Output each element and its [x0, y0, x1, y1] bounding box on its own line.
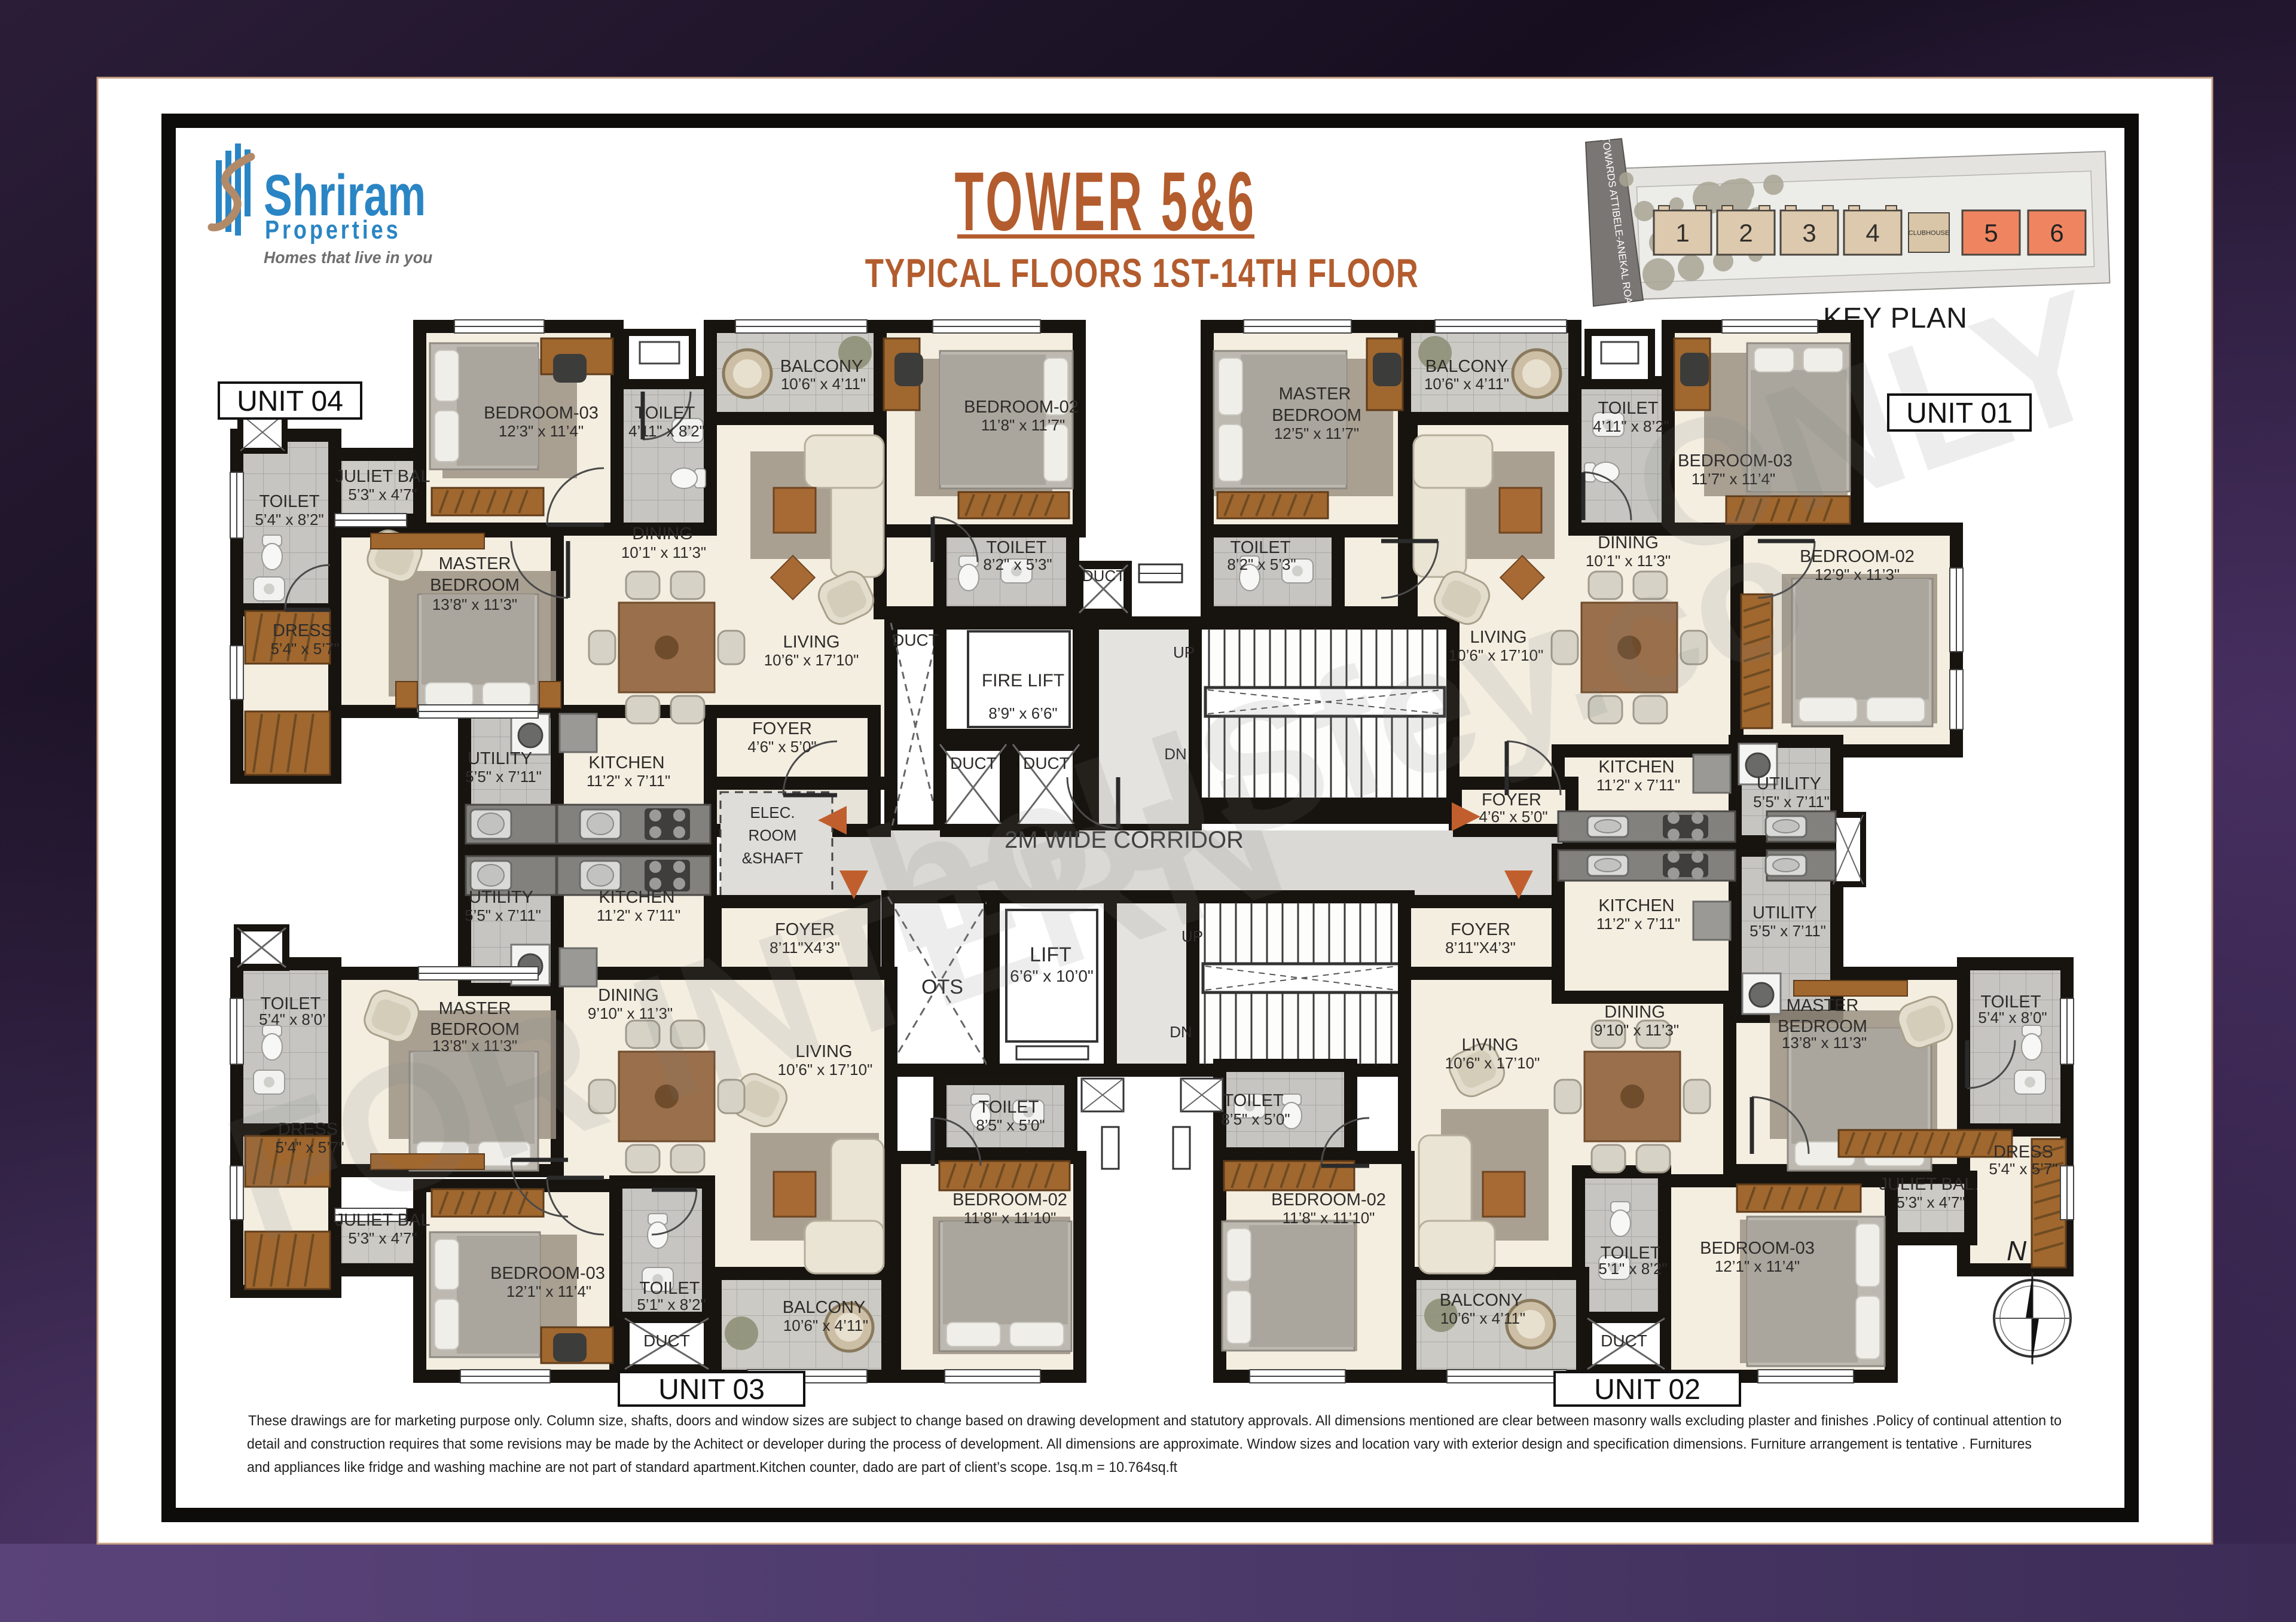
svg-text:DINING: DINING: [632, 524, 693, 543]
svg-text:UNIT 04: UNIT 04: [237, 386, 343, 417]
svg-text:BEDROOM-03: BEDROOM-03: [484, 404, 599, 423]
svg-text:BALCONY: BALCONY: [780, 357, 863, 376]
svg-text:JULIET BAL: JULIET BAL: [335, 467, 430, 486]
svg-text:UNIT 01: UNIT 01: [1906, 398, 2013, 429]
svg-text:5’1" x 8’2": 5’1" x 8’2": [1598, 1260, 1667, 1278]
svg-text:11’2" x 7’11": 11’2" x 7’11": [1596, 776, 1680, 794]
svg-text:10’6" x 17’10": 10’6" x 17’10": [764, 651, 859, 669]
svg-text:1: 1: [1675, 219, 1689, 247]
svg-text:10’6" x 17’10": 10’6" x 17’10": [1445, 1054, 1540, 1072]
svg-text:5’5" x 7’11": 5’5" x 7’11": [465, 906, 541, 924]
svg-text:DUCT: DUCT: [643, 1331, 690, 1350]
svg-text:TOILET: TOILET: [259, 492, 320, 511]
svg-text:JULIET BAL.: JULIET BAL.: [1879, 1175, 1979, 1194]
svg-text:5’3" x 4’7": 5’3" x 4’7": [1896, 1193, 1965, 1211]
svg-text:11’8" x 11’10": 11’8" x 11’10": [964, 1209, 1057, 1227]
svg-text:DRESS: DRESS: [273, 621, 332, 640]
svg-text:BALCONY: BALCONY: [1425, 357, 1509, 376]
svg-text:5’5" x 7’11": 5’5" x 7’11": [1750, 922, 1826, 940]
svg-text:KITCHEN: KITCHEN: [1598, 757, 1674, 777]
svg-text:BEDROOM-03: BEDROOM-03: [1700, 1239, 1815, 1258]
svg-text:BEDROOM: BEDROOM: [1272, 406, 1361, 425]
svg-text:5’4" x 8’0’: 5’4" x 8’0’: [259, 1010, 326, 1028]
svg-text:TOILET: TOILET: [987, 538, 1047, 557]
svg-text:N: N: [2007, 1235, 2027, 1266]
svg-text:6: 6: [2050, 219, 2063, 247]
svg-text:FOYER: FOYER: [1451, 920, 1510, 939]
svg-text:DUCT: DUCT: [1601, 1331, 1647, 1350]
svg-text:Properties: Properties: [265, 215, 401, 245]
svg-text:11’8" x 11’10": 11’8" x 11’10": [1283, 1209, 1375, 1227]
svg-text:5: 5: [1984, 219, 1998, 247]
svg-text:ROOM: ROOM: [749, 826, 797, 844]
svg-text:11’2" x 7’11": 11’2" x 7’11": [1596, 915, 1680, 933]
svg-text:12’1" x 11’4": 12’1" x 11’4": [1715, 1257, 1800, 1275]
svg-text:UTILITY: UTILITY: [1757, 774, 1821, 793]
svg-text:TYPICAL FLOORS 1ST-14TH FLOOR: TYPICAL FLOORS 1ST-14TH FLOOR: [865, 251, 1419, 296]
svg-text:13’8" x 11’3": 13’8" x 11’3": [1782, 1034, 1867, 1052]
svg-text:UNIT 03: UNIT 03: [658, 1374, 765, 1406]
svg-text:8’2" x 5’3": 8’2" x 5’3": [983, 555, 1052, 573]
svg-text:BALCONY: BALCONY: [783, 1298, 866, 1317]
svg-text:3: 3: [1802, 219, 1816, 247]
svg-text:5’4" x 5’7": 5’4" x 5’7": [270, 640, 339, 658]
svg-text:TOILET: TOILET: [635, 404, 695, 423]
svg-text:8’5" x 5’0": 8’5" x 5’0": [976, 1116, 1045, 1134]
svg-text:5’4" x 8’0": 5’4" x 8’0": [1978, 1009, 2047, 1027]
svg-text:These drawings are for marketi: These drawings are for marketing purpose…: [248, 1413, 2062, 1429]
svg-text:MASTER: MASTER: [1787, 996, 1859, 1015]
svg-text:10’6" x 4’11": 10’6" x 4’11": [783, 1316, 868, 1334]
svg-text:2: 2: [1739, 219, 1752, 247]
svg-text:BEDROOM-02: BEDROOM-02: [964, 398, 1079, 417]
svg-text:10’6" x 4’11": 10’6" x 4’11": [1424, 375, 1509, 393]
svg-text:ELEC.: ELEC.: [750, 804, 795, 821]
svg-text:KITCHEN: KITCHEN: [588, 753, 664, 772]
svg-text:TOILET: TOILET: [979, 1098, 1039, 1117]
svg-text:FOYER: FOYER: [752, 719, 812, 738]
svg-text:TOILET: TOILET: [1223, 1091, 1284, 1110]
svg-text:BEDROOM-02: BEDROOM-02: [1800, 547, 1915, 566]
svg-text:UTILITY: UTILITY: [469, 888, 533, 907]
svg-text:detail and construction requir: detail and construction requires that so…: [247, 1436, 2032, 1452]
svg-text:12’1" x 11’4": 12’1" x 11’4": [506, 1282, 591, 1300]
svg-text:12’9" x 11’3": 12’9" x 11’3": [1815, 566, 1900, 584]
svg-text:CLUBHOUSE: CLUBHOUSE: [1909, 230, 1949, 237]
svg-text:BEDROOM-03: BEDROOM-03: [490, 1264, 605, 1283]
svg-text:DN: DN: [1170, 1023, 1192, 1041]
svg-text:5’1" x 8’2": 5’1" x 8’2": [637, 1296, 706, 1314]
svg-text:5’4" x 5’7": 5’4" x 5’7": [1989, 1160, 2057, 1178]
svg-text:FIRE LIFT: FIRE LIFT: [982, 671, 1064, 691]
svg-text:4’11" x 8’2": 4’11" x 8’2": [628, 422, 705, 440]
svg-text:UNIT 02: UNIT 02: [1594, 1374, 1700, 1406]
svg-text:11’2" x 7’11": 11’2" x 7’11": [587, 772, 670, 790]
svg-text:11’8" x 11’7": 11’8" x 11’7": [981, 416, 1065, 434]
svg-text:&SHAFT: &SHAFT: [742, 849, 804, 867]
svg-text:13’8" x 11’3": 13’8" x 11’3": [432, 595, 517, 613]
svg-text:4’6" x 5’0": 4’6" x 5’0": [747, 738, 816, 756]
svg-text:DUCT: DUCT: [1082, 567, 1125, 585]
svg-text:LIVING: LIVING: [1461, 1035, 1518, 1055]
svg-text:BEDROOM-02: BEDROOM-02: [1271, 1190, 1386, 1209]
svg-text:12’5" x 11’7": 12’5" x 11’7": [1274, 424, 1359, 442]
svg-text:Homes that live in you: Homes that live in you: [264, 248, 433, 267]
svg-text:KITCHEN: KITCHEN: [599, 888, 674, 907]
svg-text:4’6" x 5’0": 4’6" x 5’0": [1479, 808, 1547, 826]
svg-text:BEDROOM-02: BEDROOM-02: [952, 1190, 1067, 1209]
svg-text:UP: UP: [1173, 643, 1195, 661]
svg-text:TOILET: TOILET: [1231, 538, 1291, 557]
svg-text:5’5" x 7’11": 5’5" x 7’11": [1753, 793, 1830, 811]
svg-text:5’4" x 8’2": 5’4" x 8’2": [255, 511, 323, 529]
svg-text:MASTER: MASTER: [439, 554, 511, 573]
svg-text:10’6" x 4’11": 10’6" x 4’11": [781, 375, 866, 393]
svg-text:5’3" x 4’7": 5’3" x 4’7": [348, 485, 417, 503]
svg-text:UTILITY: UTILITY: [468, 749, 532, 768]
svg-text:DUCT: DUCT: [892, 631, 939, 649]
svg-text:10’6" x 4’11": 10’6" x 4’11": [1440, 1309, 1525, 1327]
svg-text:KITCHEN: KITCHEN: [1598, 896, 1674, 915]
svg-text:FOYER: FOYER: [1482, 790, 1541, 810]
svg-text:BEDROOM: BEDROOM: [430, 576, 520, 595]
svg-text:and appliances like fridge and: and appliances like fridge and washing m…: [247, 1459, 1177, 1476]
svg-text:12’3" x 11’4": 12’3" x 11’4": [499, 422, 584, 440]
svg-text:DRESS: DRESS: [1993, 1143, 2053, 1162]
svg-text:8’2" x 5’3": 8’2" x 5’3": [1227, 555, 1296, 573]
svg-text:BALCONY: BALCONY: [1440, 1291, 1523, 1310]
svg-text:UTILITY: UTILITY: [1752, 903, 1817, 923]
svg-text:4: 4: [1865, 219, 1879, 247]
svg-text:8’5" x 5’0": 8’5" x 5’0": [1221, 1110, 1290, 1128]
svg-text:10’1" x 11’3": 10’1" x 11’3": [621, 543, 706, 561]
svg-text:MASTER: MASTER: [1279, 384, 1351, 404]
svg-text:LIVING: LIVING: [783, 633, 839, 652]
svg-text:5’5" x 7’11": 5’5" x 7’11": [465, 768, 542, 786]
svg-text:8’9" x 6’6": 8’9" x 6’6": [988, 704, 1057, 722]
svg-text:DINING: DINING: [1604, 1003, 1665, 1022]
svg-text:9’10" x 11’3": 9’10" x 11’3": [1594, 1021, 1679, 1039]
svg-text:8’11"X4’3": 8’11"X4’3": [1445, 939, 1516, 957]
svg-text:11’2" x 7’11": 11’2" x 7’11": [597, 906, 680, 924]
